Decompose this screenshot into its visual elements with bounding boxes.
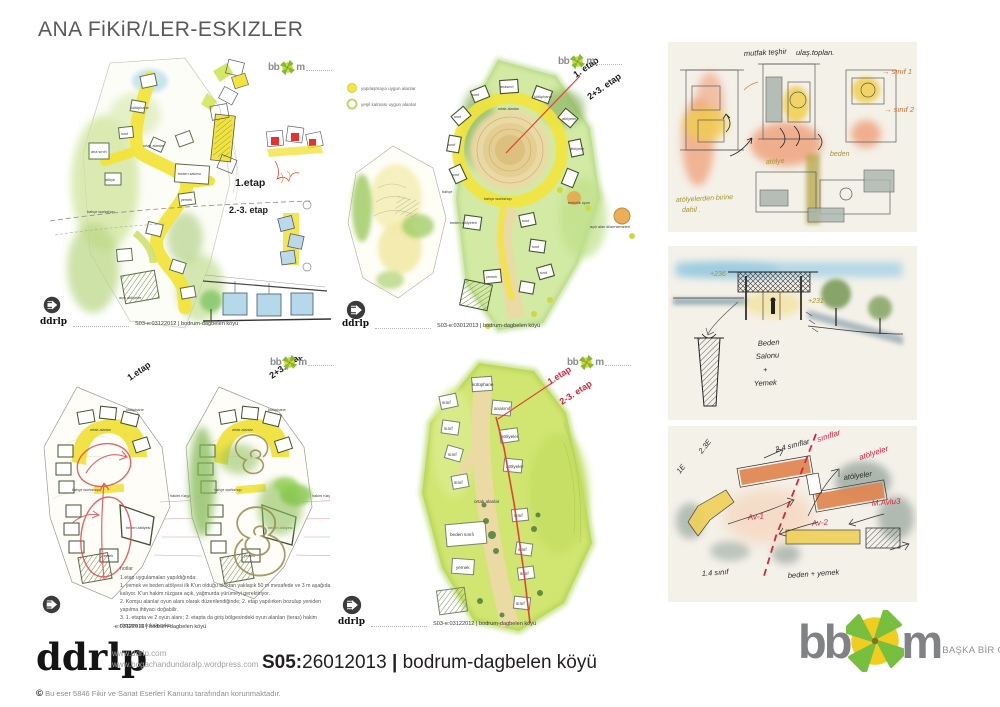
svg-text:+236: +236 bbox=[710, 271, 726, 278]
url-ddrlp: www.ddrlp.com bbox=[112, 649, 258, 660]
site-plan-drawing-1: ana sınıfı ortak alanlar beden salonu ye… bbox=[35, 53, 335, 345]
svg-text:dahil .: dahil . bbox=[682, 207, 701, 214]
svg-text:sınıf: sınıf bbox=[444, 426, 453, 431]
bbom-mini-m: m bbox=[586, 57, 594, 67]
svg-text:kütüphane: kütüphane bbox=[472, 382, 494, 387]
copyright-text: Bu eser 5846 Fikir ve Sanat Eserleri Kan… bbox=[45, 689, 281, 698]
bbom-mini-m: m bbox=[298, 358, 306, 368]
building-label: ortak alanlar bbox=[143, 144, 165, 148]
legend-item-1: yapılaşmaya uygun alanlar bbox=[361, 86, 416, 91]
concept-sketch-1: mutfak teşhir ulaş.toplan. → sınıf 1 → s… bbox=[668, 42, 917, 232]
bbom-pinwheel-icon bbox=[280, 60, 295, 75]
caption-code: S05: bbox=[262, 652, 302, 673]
copyright-line: © Bu eser 5846 Fikir ve Sanat Eserleri K… bbox=[36, 688, 281, 699]
sheet-caption: S05:26012013 | bodrum-dagbelen köyü bbox=[262, 652, 597, 674]
bbom-pinwheel-icon bbox=[282, 355, 297, 370]
svg-text:sınıflar: sınıflar bbox=[816, 428, 842, 444]
notes-line: kalıyor. K'un hakim rüzgara açık, yağmur… bbox=[120, 590, 335, 598]
svg-text:+231: +231 bbox=[808, 298, 824, 305]
svg-text:1E: 1E bbox=[674, 462, 687, 476]
svg-text:sınıf: sınıf bbox=[532, 245, 540, 249]
svg-text:bahçe workshop: bahçe workshop bbox=[484, 197, 512, 201]
url-wordpress: www.bogachandundaralp.wordpress.com bbox=[112, 660, 258, 671]
direction-arrow-icon bbox=[346, 300, 366, 320]
svg-text:temizlik oyun: temizlik oyun bbox=[568, 201, 590, 205]
svg-text:atölyeler: atölyeler bbox=[506, 464, 524, 469]
stage-label-1: 1.etap bbox=[125, 359, 152, 382]
building-label: ana sınıfı bbox=[91, 150, 107, 154]
section-building bbox=[673, 272, 818, 320]
svg-text:atölyeler: atölyeler bbox=[501, 434, 519, 439]
site-plan-drawing-3: kütüphane sınıf anasınıf sınıf atölyeler… bbox=[334, 353, 660, 645]
copyright-icon: © bbox=[36, 688, 43, 699]
mini-courtyard-sketch bbox=[278, 201, 311, 271]
direction-arrow-icon bbox=[43, 296, 61, 314]
svg-text:bahçe: bahçe bbox=[442, 190, 452, 194]
svg-text:beden: beden bbox=[830, 151, 850, 158]
svg-text:→ sınıf 1: → sınıf 1 bbox=[882, 67, 912, 76]
notes-line: 3. 1. etapta ve 2 oyun alanı; 2. etapta … bbox=[120, 614, 335, 622]
svg-text:2.3E: 2.3E bbox=[696, 437, 714, 456]
page-title: ANA FiKiR/LER-ESKIZLER bbox=[38, 18, 303, 42]
bbom-m-letter: m bbox=[901, 618, 940, 665]
svg-text:Yemek: Yemek bbox=[754, 378, 779, 388]
svg-text:ortak alanlar: ortak alanlar bbox=[474, 499, 500, 504]
bbom-mini-bb: bb bbox=[567, 358, 578, 368]
notes-line: yapılma ihtiyacı doğabilir. bbox=[120, 606, 335, 614]
bbom-mini-tagline-line bbox=[306, 65, 332, 71]
svg-text:anasınıf: anasınıf bbox=[500, 85, 514, 89]
notes-line: 1. yemek ve beden atölyesi ilk K'un oldu… bbox=[120, 582, 335, 590]
ddrlp-mini-logo: ddrlp bbox=[40, 318, 67, 327]
svg-text:Beden: Beden bbox=[758, 338, 780, 348]
bbom-pinwheel-icon bbox=[579, 355, 594, 370]
legend-item-2: yeşil kalması uygun alanlar bbox=[361, 102, 417, 107]
building-label: sınıf bbox=[121, 132, 129, 136]
bbom-mini-bb: bb bbox=[268, 63, 279, 73]
concept-sketch-3: 1E 2.3E 2.4 sınıflar atölyeler 1.4 sınıf… bbox=[668, 426, 917, 602]
bbom-pinwheel-icon bbox=[846, 610, 904, 672]
svg-text:sınıf: sınıf bbox=[454, 115, 462, 119]
stage-label-23: 2-3. etap bbox=[558, 378, 594, 407]
bbom-mini-logo: bb m bbox=[270, 355, 334, 370]
section-sketch bbox=[200, 275, 331, 321]
svg-text:sınıf: sınıf bbox=[448, 143, 456, 147]
direction-arrow-icon bbox=[342, 595, 362, 615]
stage-label-1: 1.etap bbox=[235, 177, 265, 189]
svg-text:beden sınıfı: beden sınıfı bbox=[450, 532, 474, 537]
caption-text: S03-e:03122012 | bodrum-dagbelen köyü bbox=[433, 621, 536, 627]
site-plan-drawing-2: yapılaşmaya uygun alanlar yeşil kalması … bbox=[338, 48, 660, 345]
plan-panel-bottom-middle: kütüphane sınıf anasınıf sınıf atölyeler… bbox=[334, 353, 660, 645]
terrain-study-mini-plan bbox=[348, 146, 446, 298]
svg-text:sınıf: sınıf bbox=[442, 400, 451, 405]
sketch-panel-diagram: 1E 2.3E 2.4 sınıflar atölyeler 1.4 sınıf… bbox=[668, 426, 917, 602]
bbom-logo: bb m BAŞKA BİR OKUL MÜMKÜN bbox=[798, 610, 1000, 672]
building-label: beden salonu bbox=[178, 172, 201, 176]
svg-text:sınıf: sınıf bbox=[448, 452, 457, 457]
caption-date: 26012013 bbox=[302, 652, 387, 673]
notes-title: notlar bbox=[120, 565, 335, 573]
bbom-mini-bb: bb bbox=[558, 57, 569, 67]
svg-text:2.4 sınıflar: 2.4 sınıflar bbox=[773, 437, 811, 455]
svg-text:Salonu: Salonu bbox=[756, 350, 781, 361]
svg-text:ulaş.toplan.: ulaş.toplan. bbox=[796, 48, 834, 57]
ddrlp-mini-logo: ddrlp bbox=[342, 320, 369, 329]
pier-detail bbox=[694, 302, 738, 406]
caption-text: -e:03122012 | bodrum-dagbelen köyü bbox=[113, 624, 206, 630]
panel-caption-bottom-left: -e:03122012 | bodrum-dagbelen köyü bbox=[113, 624, 206, 630]
caption-text: S03-e:03012013 | bodrum-dagbelen köyü bbox=[437, 323, 540, 329]
sketch-panel-section: +236 +231 Beden Salonu + Yemek bbox=[668, 246, 917, 420]
building-label: bahçe workshop bbox=[87, 210, 115, 214]
concept-sketch-2: +236 +231 Beden Salonu + Yemek bbox=[668, 246, 917, 420]
legend: yapılaşmaya uygun alanlar yeşil kalması … bbox=[348, 84, 417, 109]
plan-panel-top-left: ana sınıfı ortak alanlar beden salonu ye… bbox=[35, 53, 335, 345]
svg-text:→ sınıf 2: → sınıf 2 bbox=[884, 105, 915, 114]
svg-text:atölyeler: atölyeler bbox=[562, 117, 577, 121]
caption-leader-line bbox=[371, 619, 427, 627]
svg-text:sınıf: sınıf bbox=[454, 480, 463, 485]
ddrlp-mini-logo: ddrlp bbox=[338, 618, 365, 627]
website-urls: www.ddrlp.com www.bogachandundaralp.word… bbox=[112, 649, 258, 671]
svg-text:atölyelerden birine: atölyelerden birine bbox=[676, 194, 734, 204]
building-label: yemek bbox=[181, 198, 192, 202]
bbom-mini-tagline-line bbox=[596, 59, 622, 65]
bbom-pinwheel-icon bbox=[570, 54, 585, 69]
panel-caption-bottom-middle: ddrlp S03-e:03122012 | bodrum-dagbelen k… bbox=[338, 618, 536, 627]
svg-text:ortak alanlar: ortak alanlar bbox=[498, 107, 520, 111]
svg-text:sınıf: sınıf bbox=[452, 173, 460, 177]
plan-panel-top-middle: yapılaşmaya uygun alanlar yeşil kalması … bbox=[338, 48, 660, 345]
presentation-board: ANA FiKiR/LER-ESKIZLER bbox=[0, 0, 1000, 707]
bbom-mini-logo: bb m bbox=[567, 355, 631, 370]
svg-text:sınıf: sınıf bbox=[522, 219, 530, 223]
bbom-mini-m: m bbox=[595, 358, 603, 368]
svg-text:sınıf: sınıf bbox=[472, 93, 480, 97]
svg-text:yemek: yemek bbox=[456, 565, 470, 570]
bbom-mini-logo: bb m bbox=[268, 60, 332, 75]
caption-leader-line bbox=[73, 319, 129, 327]
direction-arrow-icon bbox=[42, 595, 61, 614]
svg-text:beden + yemek: beden + yemek bbox=[788, 567, 841, 580]
bbom-mini-bb: bb bbox=[270, 358, 281, 368]
notes-line: 2. Komşu alanlar oyun alanı olarak düzen… bbox=[120, 598, 335, 606]
caption-place: bodrum-dagbelen köyü bbox=[403, 652, 597, 673]
bbom-tagline: BAŞKA BİR OKUL MÜMKÜN bbox=[942, 645, 1000, 656]
bbom-bb-letters: bb bbox=[798, 618, 849, 665]
svg-text:1.4 sınıf: 1.4 sınıf bbox=[702, 567, 730, 578]
caption-text: S03-e:03122012 | bodrum-dagbelen köyü bbox=[135, 321, 238, 327]
building-label: açık atölyeler bbox=[119, 296, 142, 300]
bbom-mini-m: m bbox=[296, 63, 304, 73]
svg-text:yemek: yemek bbox=[486, 275, 497, 279]
svg-text:+: + bbox=[763, 365, 768, 374]
panel-caption-top-left: ddrlp S03-e:03122012 | bodrum-dagbelen k… bbox=[40, 318, 238, 327]
svg-text:sınıf: sınıf bbox=[518, 547, 527, 552]
svg-text:kütüphane: kütüphane bbox=[534, 95, 552, 99]
caption-separator: | bbox=[392, 652, 397, 673]
stage-label-23: 2+3. etap bbox=[585, 71, 623, 102]
svg-text:anasınıf: anasınıf bbox=[494, 406, 511, 411]
sketch-panel-plans: mutfak teşhir ulaş.toplan. → sınıf 1 → s… bbox=[668, 42, 917, 232]
building-label: kütüphane bbox=[131, 106, 149, 110]
notes-line: 1.etap uygulamaları yapıldığında: bbox=[120, 574, 335, 582]
svg-text:atölye: atölye bbox=[766, 158, 785, 166]
caption-leader-line bbox=[375, 321, 431, 329]
svg-text:Av-2: Av-2 bbox=[810, 518, 829, 529]
notes-block: notlar 1.etap uygulamaları yapıldığında:… bbox=[120, 565, 335, 631]
panel-caption-top-middle: ddrlp S03-e:03012013 | bodrum-dagbelen k… bbox=[342, 320, 540, 329]
svg-text:Av-1: Av-1 bbox=[746, 512, 764, 522]
stage-label-23: 2.-3. etap bbox=[229, 205, 269, 215]
building-label: atölye bbox=[105, 178, 115, 182]
bbom-mini-logo: bb m bbox=[558, 54, 622, 69]
svg-text:beden atölyeleri: beden atölyeleri bbox=[450, 221, 477, 225]
bbom-mini-tagline-line bbox=[605, 360, 631, 366]
svg-text:mutfak teşhir: mutfak teşhir bbox=[744, 47, 788, 58]
svg-text:sınıf: sınıf bbox=[540, 271, 548, 275]
svg-text:sınıf: sınıf bbox=[516, 601, 525, 606]
svg-text:açık alan düzenlemeleri: açık alan düzenlemeleri bbox=[590, 225, 630, 229]
svg-text:atölyeler: atölyeler bbox=[858, 444, 890, 462]
svg-text:atölyeler: atölyeler bbox=[570, 147, 585, 151]
bbom-mini-tagline-line bbox=[308, 360, 334, 366]
